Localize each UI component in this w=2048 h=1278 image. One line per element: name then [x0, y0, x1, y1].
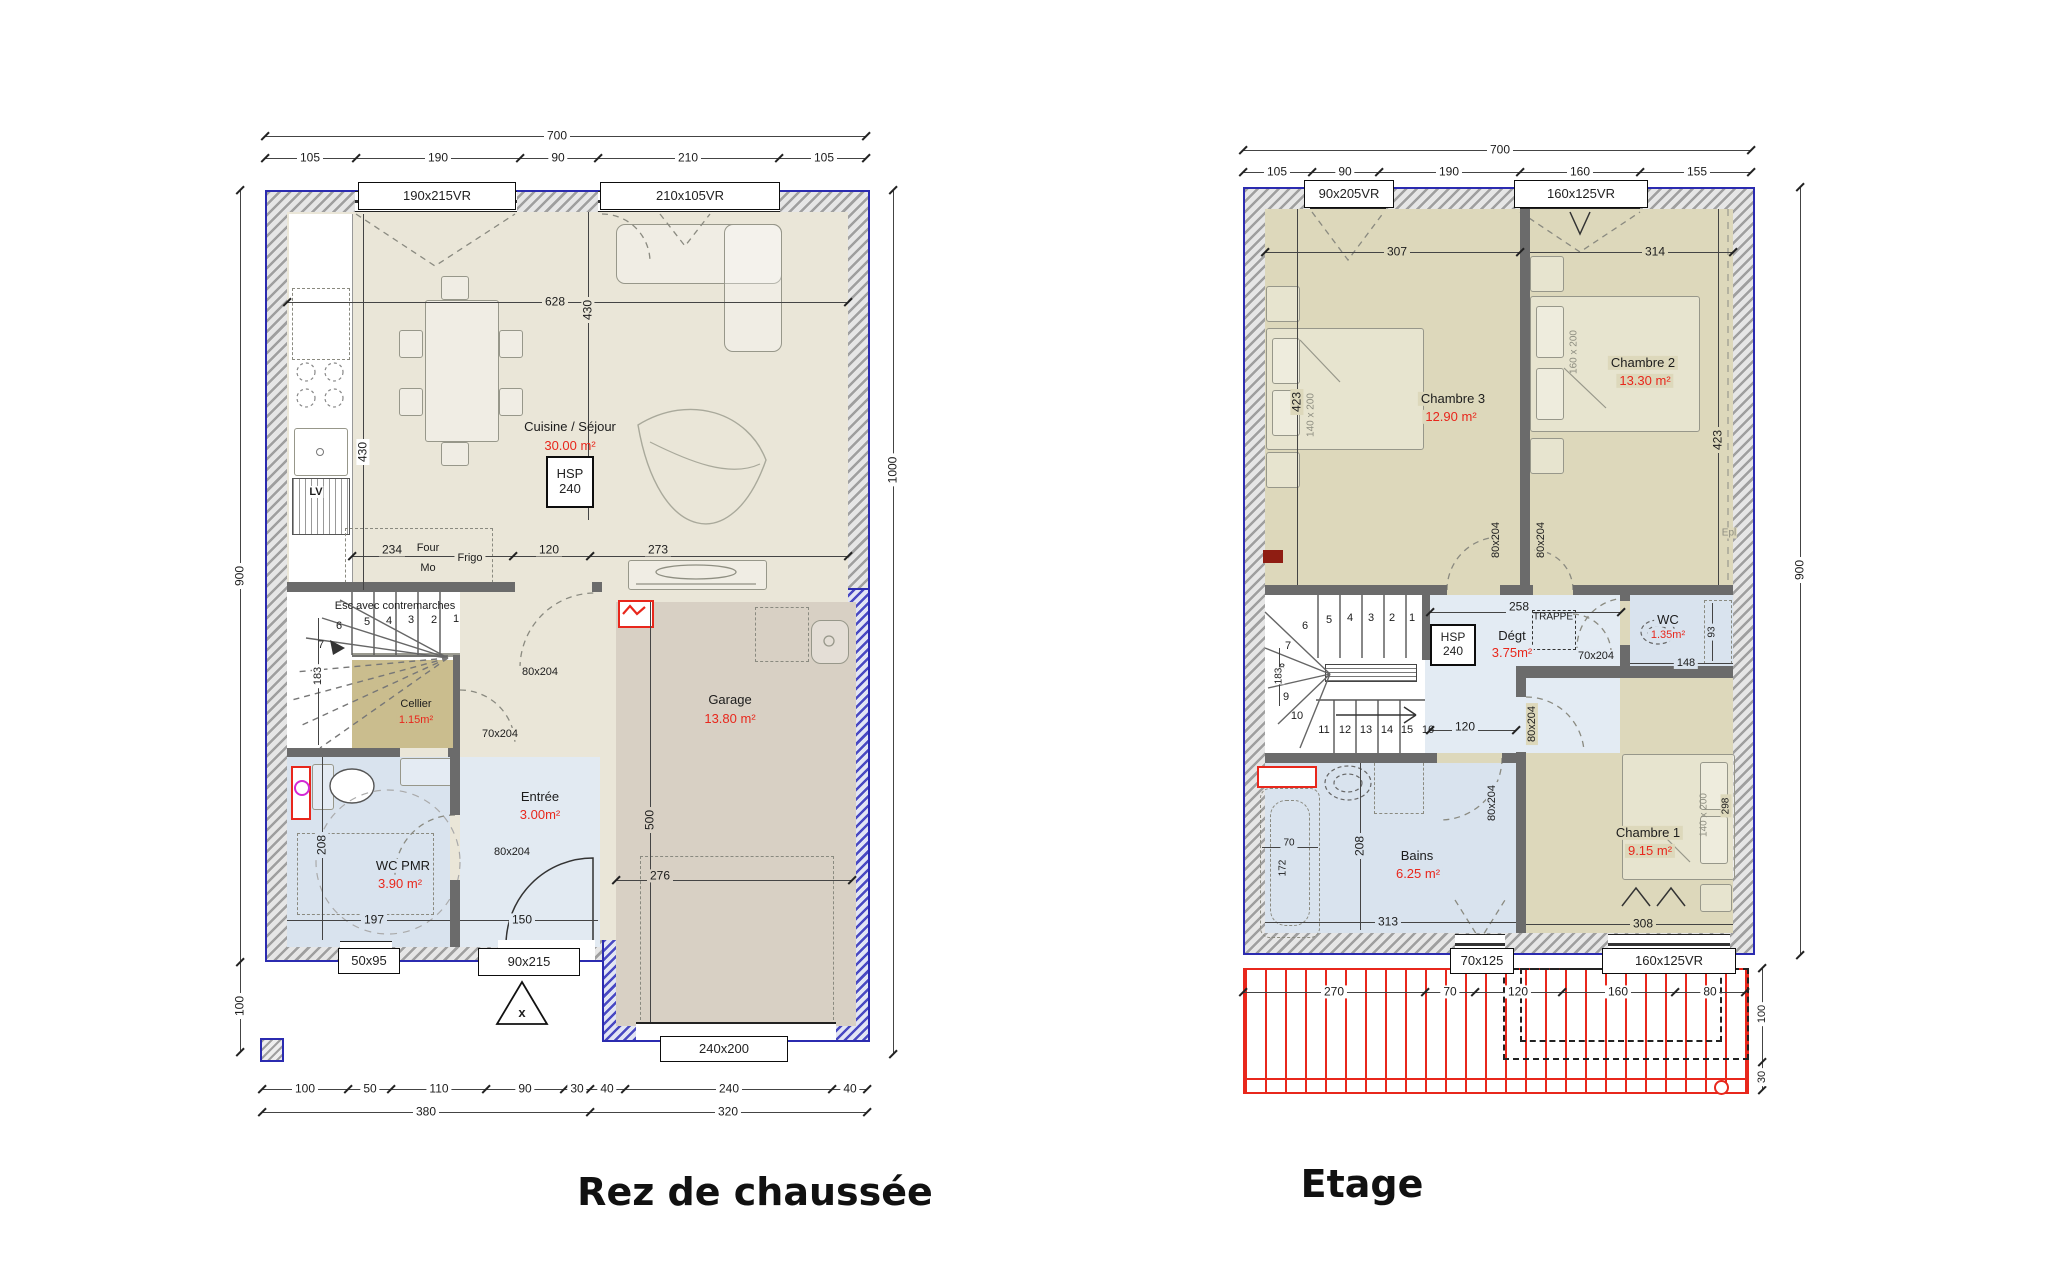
door-label: 70x204: [479, 728, 521, 740]
door-label: 80x204: [1526, 703, 1538, 745]
dim-label: 628: [542, 295, 568, 308]
dim-label: 172: [1278, 857, 1289, 880]
step-number: 1: [1409, 612, 1415, 624]
room-area: 1.15m²: [397, 714, 435, 726]
wall: [1516, 678, 1526, 697]
room-area: 12.90 m²: [1422, 410, 1479, 424]
window-label: 90x205VR: [1304, 180, 1394, 208]
dim-label: 700: [544, 129, 570, 142]
dim-label: 160: [1605, 985, 1631, 998]
dim-label: 100: [233, 993, 246, 1019]
dim-label: 100: [292, 1082, 318, 1095]
dim-label: 93: [1707, 623, 1718, 640]
dim-label: 90: [1335, 165, 1354, 178]
door-label: 80x204: [492, 846, 532, 858]
dim-line: [352, 556, 848, 557]
trappe-label: TRAPPE: [1533, 612, 1573, 623]
wall: [450, 880, 460, 947]
room-name: Cuisine / Séjour: [524, 420, 616, 434]
appliance-label: LV: [308, 486, 323, 498]
step-number: 1: [453, 613, 459, 625]
bed-size-label: 140 x 200: [1306, 393, 1317, 437]
door-label: 80x204: [1486, 782, 1498, 824]
wall: [592, 582, 602, 592]
bed-size-label: 140 x 200: [1699, 793, 1710, 837]
dim-label: 210: [675, 151, 701, 164]
dim-label: 190: [1436, 165, 1462, 178]
dim-line: [893, 190, 894, 1054]
window-label: 210x105VR: [600, 182, 780, 210]
step-number: 2: [1389, 612, 1395, 624]
closet-label: Epl: [1721, 528, 1737, 539]
step-number: 3: [408, 614, 414, 626]
dim-label: 183: [1274, 668, 1285, 685]
dim-label: 155: [1684, 165, 1710, 178]
dim-label: 313: [1375, 915, 1401, 928]
dim-line: [1718, 209, 1719, 585]
dim-label: 160: [1567, 165, 1593, 178]
dim-label: 900: [233, 563, 246, 589]
dim-label: 308: [1630, 917, 1656, 930]
garage-door-label: 240x200: [660, 1036, 788, 1062]
window-label: 50x95: [338, 948, 400, 974]
wall: [287, 748, 400, 757]
dim-label: 90: [548, 151, 567, 164]
dim-line: [1243, 992, 1745, 993]
dim-label: 430: [356, 439, 369, 465]
wall: [453, 655, 460, 757]
dim-label: 105: [1264, 165, 1290, 178]
dim-label: 320: [715, 1105, 741, 1118]
hsp-badge: HSP240: [546, 456, 594, 508]
window-label: 70x125: [1450, 948, 1514, 974]
wall: [1573, 585, 1733, 595]
step-number: 13: [1360, 724, 1372, 736]
plan-title-ground: Rez de chaussée: [577, 1170, 933, 1214]
step-number: 7: [1285, 640, 1291, 652]
appliance-label: Mo: [417, 562, 438, 574]
wall: [1265, 585, 1447, 595]
appliance-label: Four: [414, 542, 443, 554]
dim-label: 423: [1290, 389, 1303, 415]
room-area: 30.00 m²: [544, 439, 595, 453]
dim-line: [1530, 252, 1733, 253]
wall: [1620, 645, 1630, 668]
dim-label: 120: [1452, 720, 1478, 733]
door-label: 80x204: [1535, 519, 1547, 561]
window-label: 160x125VR: [1514, 180, 1648, 208]
step-number: 4: [1347, 612, 1353, 624]
room-name: WC: [1654, 613, 1682, 627]
door-label: 80x204: [1490, 519, 1502, 561]
step-number: 9: [1283, 691, 1289, 703]
dim-line: [1243, 172, 1751, 173]
step-number: 15: [1401, 724, 1413, 736]
step-number: 12: [1339, 724, 1351, 736]
wall: [1502, 753, 1516, 763]
dim-label: 120: [1505, 985, 1531, 998]
dim-label: 190: [425, 151, 451, 164]
room-area: 3.00m²: [518, 808, 562, 822]
door-label: 90x215: [478, 948, 580, 976]
dim-label: 423: [1711, 427, 1724, 453]
step-number: 11: [1318, 724, 1329, 736]
step-number: 14: [1381, 724, 1393, 736]
room-area: 3.75m²: [1490, 646, 1534, 660]
wall: [1516, 666, 1733, 678]
hsp-badge: HSP240: [1430, 624, 1476, 666]
wall: [1500, 585, 1533, 595]
dim-label: 120: [536, 543, 562, 556]
room-area: 13.30 m²: [1616, 374, 1673, 388]
stairs-label: Esc avec contremarches: [335, 600, 455, 612]
room-name: Chambre 3: [1418, 392, 1488, 406]
room-name: Bains: [1398, 849, 1437, 863]
dim-label: 208: [1353, 833, 1366, 859]
window-label: 160x125VR: [1602, 948, 1736, 974]
dim-label: 276: [647, 869, 673, 882]
dim-label: 150: [509, 913, 535, 926]
room-area: 9.15 m²: [1625, 844, 1675, 858]
dim-label: 30: [1756, 1068, 1768, 1086]
dim-label: 90: [515, 1082, 534, 1095]
wall: [1516, 752, 1526, 933]
room-name: Dégt: [1496, 629, 1527, 643]
window-label: 190x215VR: [358, 182, 516, 210]
room-name: Chambre 1: [1613, 826, 1683, 840]
dim-label: 900: [1793, 557, 1806, 583]
wall: [1620, 595, 1630, 601]
dim-label: 80: [1700, 985, 1719, 998]
floorplan-sheet: 190x215VR 210x105VR 50x95 90x215 240x200…: [0, 0, 2048, 1278]
dim-label: 298: [1721, 795, 1732, 818]
step-number: 2: [431, 614, 437, 626]
dim-label: 273: [645, 543, 671, 556]
dim-label: 1000: [886, 454, 899, 487]
step-number: 3: [1368, 612, 1374, 624]
dim-label: 70: [1440, 985, 1459, 998]
dim-label: 110: [426, 1082, 451, 1095]
dim-label: 307: [1384, 245, 1410, 258]
dim-label: 50: [360, 1082, 379, 1095]
wall: [1422, 595, 1430, 660]
entrance-mark: x: [518, 1006, 525, 1020]
dim-label: 197: [361, 913, 387, 926]
room-area: 1.35m²: [1648, 629, 1688, 641]
room-area: 3.90 m²: [375, 877, 425, 891]
step-number: 10: [1291, 710, 1303, 722]
dim-label: 380: [413, 1105, 439, 1118]
room-name: Garage: [705, 693, 754, 707]
dim-label: 430: [581, 297, 594, 323]
step-number: 5: [364, 616, 370, 628]
wall: [1265, 753, 1437, 763]
step-number: 4: [386, 615, 392, 627]
dim-label: 183: [312, 664, 324, 688]
plan-title-floor: Etage: [1301, 1162, 1424, 1206]
wall: [287, 582, 515, 592]
dim-label: 240: [716, 1082, 742, 1095]
dim-label: 208: [315, 832, 328, 858]
step-number: 16: [1422, 724, 1434, 736]
step-number: 6: [336, 620, 342, 632]
dim-label: 500: [643, 807, 656, 833]
room-name: WC PMR: [373, 859, 433, 873]
step-number: 6: [1302, 620, 1308, 632]
step-number: 7: [318, 639, 324, 651]
door-label: 80x204: [519, 666, 561, 678]
dim-label: 70: [1280, 838, 1297, 849]
room-area: 6.25 m²: [1393, 867, 1443, 881]
room-name: Chambre 2: [1608, 356, 1678, 370]
appliance-label: Frigo: [454, 552, 485, 564]
dim-label: 100: [1756, 1002, 1768, 1026]
dim-label: 40: [840, 1082, 859, 1095]
bed-size-label: 160 x 200: [1569, 330, 1580, 374]
dim-label: 270: [1321, 985, 1347, 998]
room-area: 13.80 m²: [701, 712, 758, 726]
dim-label: 105: [811, 151, 837, 164]
dim-label: 258: [1506, 600, 1532, 613]
step-number: 5: [1326, 614, 1332, 626]
wall: [450, 757, 460, 815]
dim-label: 30: [567, 1082, 586, 1095]
room-name: Entrée: [519, 790, 561, 804]
dim-label: 148: [1674, 657, 1698, 669]
dim-label: 234: [379, 543, 405, 556]
dim-label: 105: [297, 151, 323, 164]
door-label: 70x204: [1576, 650, 1616, 662]
dim-label: 314: [1642, 245, 1668, 258]
dim-line: [363, 214, 364, 590]
dim-label: 700: [1487, 143, 1513, 156]
wall: [1520, 209, 1530, 585]
dim-line: [262, 1112, 867, 1113]
room-name: Cellier: [398, 698, 433, 710]
dim-label: 40: [597, 1082, 616, 1095]
